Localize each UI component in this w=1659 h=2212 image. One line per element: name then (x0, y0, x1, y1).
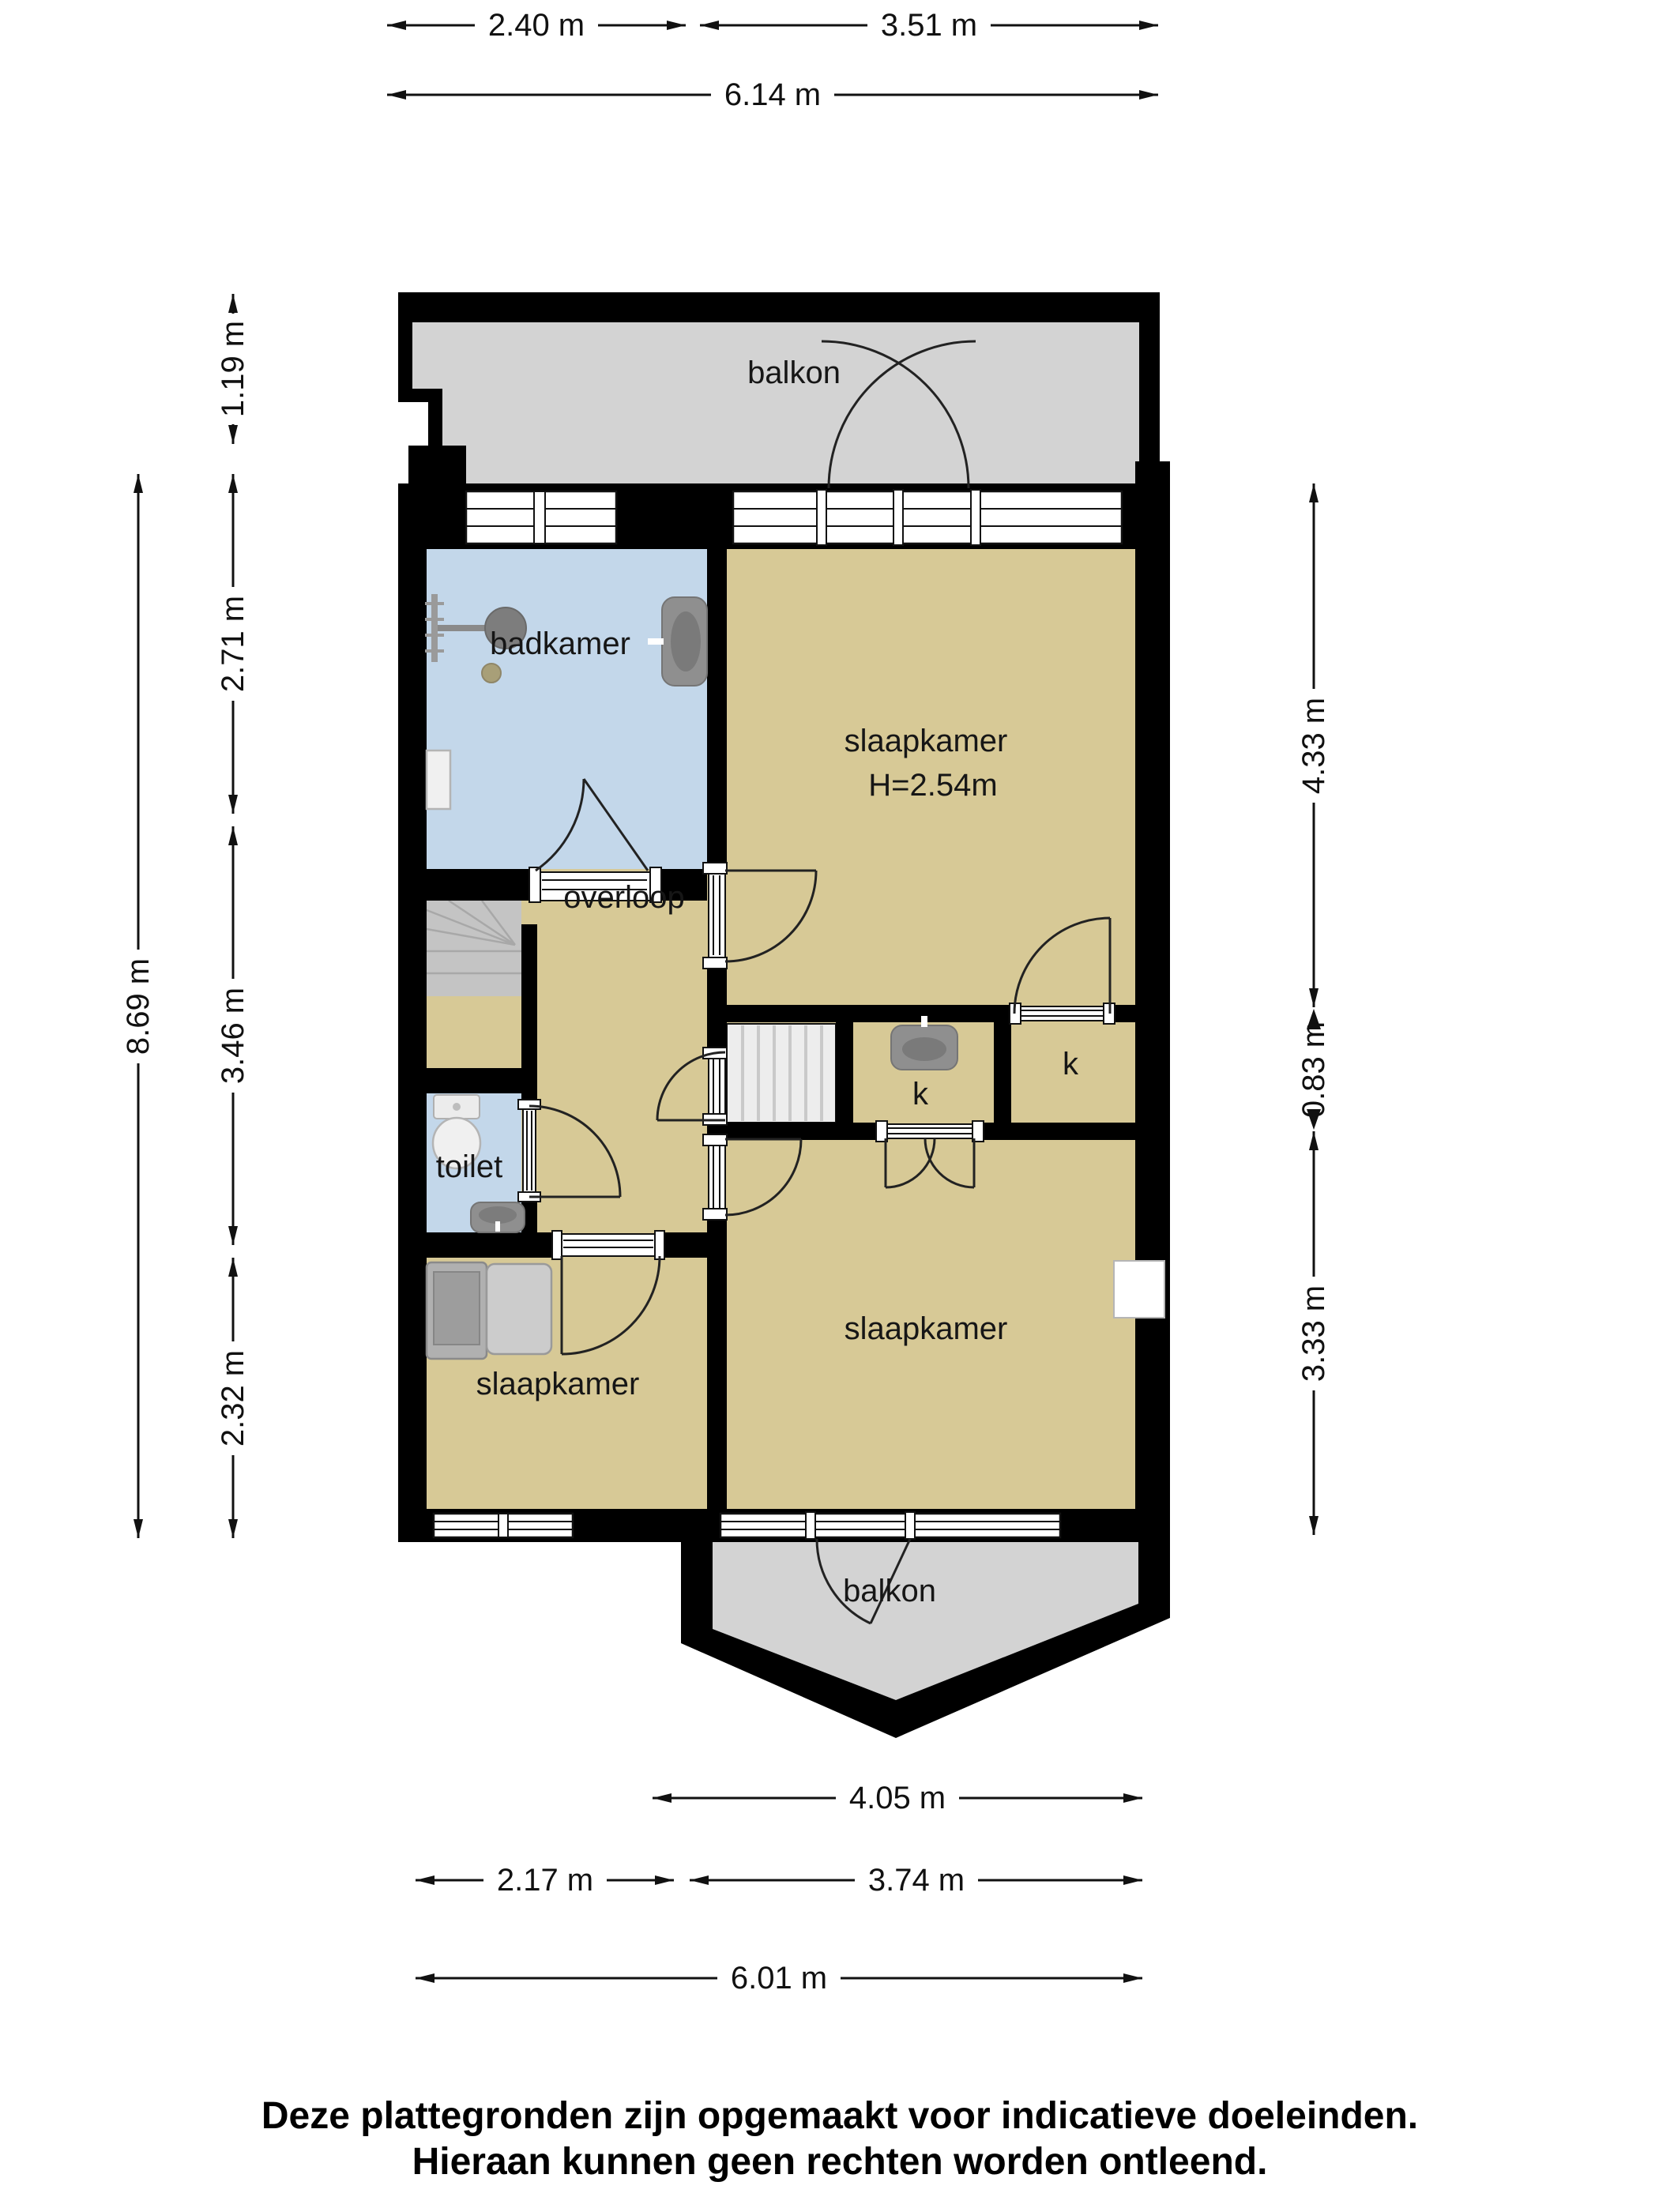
room-label-balkon-bottom: balkon (843, 1574, 936, 1608)
dim-bottom-room: 4.05 m (849, 1781, 946, 1815)
window-slaapkamer-bl-mullion (498, 1514, 508, 1537)
dim-top-left: 2.40 m (488, 8, 585, 43)
wall-above-toilet (427, 1068, 537, 1093)
dim-bottom-right: 3.74 m (868, 1863, 965, 1898)
door-threshold-stairs (709, 1054, 725, 1119)
sink-basin (479, 1206, 517, 1224)
room-label-overloop: overloop (563, 880, 684, 915)
sink-tap (495, 1221, 500, 1232)
dryer-icon (487, 1264, 551, 1354)
room-badkamer-floor (427, 549, 707, 869)
balcony-door-jamb-center (893, 490, 903, 545)
window-slaapkamer-top-left (733, 491, 822, 544)
dim-right-lower: 3.33 m (1296, 1285, 1331, 1382)
door-jamb (703, 957, 727, 969)
windows-bottom (434, 1512, 1060, 1539)
door-jamb (703, 1209, 727, 1220)
dim-top-right: 3.51 m (881, 8, 977, 43)
shower-arm (438, 625, 487, 631)
wall-badkamer-bottom-left (427, 869, 536, 901)
dim-top-total: 6.14 m (724, 77, 821, 112)
disclaimer-line1: Deze plattegronden zijn opgemaakt voor i… (261, 2095, 1418, 2137)
radiator-icon (427, 750, 450, 809)
balcony-door-jamb-left (817, 490, 826, 545)
door-threshold-closet-left (882, 1124, 977, 1138)
door-jamb (703, 1134, 727, 1145)
wall-corridor-end (660, 1232, 707, 1258)
room-label-closet-left: k (912, 1077, 929, 1112)
room-label-slaapkamer-br: slaapkamer (845, 1311, 1008, 1346)
dimensions-bottom: 4.05 m 2.17 m 3.74 m 6.01 m (416, 1781, 1142, 1996)
sink-toilet-icon (471, 1202, 525, 1232)
footer: Deze plattegronden zijn opgemaakt voor i… (261, 2095, 1418, 2183)
dim-left-middle: 3.46 m (216, 987, 250, 1084)
window-slaapkamer-br (720, 1514, 1060, 1537)
wall-below-toilet (427, 1232, 557, 1258)
room-label-balkon-top: balkon (747, 355, 841, 390)
washer-panel (434, 1272, 480, 1345)
dim-bottom-total: 6.01 m (731, 1961, 827, 1996)
wall-between-closets (994, 1022, 1011, 1123)
wall-closet-top-left (707, 1005, 1014, 1022)
door-jamb (552, 1231, 562, 1259)
wall-center-4 (707, 1215, 727, 1509)
dim-left-total: 8.69 m (121, 958, 156, 1055)
dim-bottom-left: 2.17 m (497, 1863, 593, 1898)
shower-drain (482, 664, 501, 683)
balcony-bottom (681, 1542, 1170, 1738)
wall-closet-bottom-left (707, 1123, 881, 1140)
door-jamb (703, 863, 727, 874)
room-label-toilet: toilet (436, 1149, 503, 1184)
washing-machine-icon (427, 1262, 487, 1359)
dim-left-lower: 2.32 m (216, 1350, 250, 1446)
right-wall (1135, 461, 1170, 1542)
door-threshold-toilet (523, 1106, 536, 1195)
balcony-step-wall-a (412, 389, 442, 403)
sink-tap (921, 1016, 927, 1027)
room-label-badkamer: badkamer (490, 626, 630, 661)
door-threshold-slaapkamer-top (709, 871, 725, 960)
balcony-door-jamb-right (971, 490, 980, 545)
dim-right-middle: 0.83 m (1296, 1021, 1331, 1118)
dim-left-upper: 2.71 m (216, 596, 250, 692)
room-label-closet-right: k (1063, 1047, 1079, 1082)
sink-basin (902, 1037, 946, 1061)
window-badkamer-mullion (534, 491, 545, 544)
floorplan-page: balkon badkamer slaapkamer H=2.54m overl… (0, 0, 1659, 2212)
room-label-slaapkamer-height: H=2.54m (868, 768, 997, 803)
floorplan-drawing: balkon badkamer slaapkamer H=2.54m overl… (0, 0, 1659, 2212)
door-threshold-slaapkamer-bl (559, 1234, 658, 1256)
room-label-slaapkamer-top: slaapkamer (845, 724, 1008, 758)
room-label-slaapkamer-bl: slaapkamer (476, 1367, 640, 1401)
wall-niche (1114, 1261, 1164, 1318)
disclaimer-line2: Hieraan kunnen geen rechten worden ontle… (412, 2141, 1268, 2183)
sink-tap (648, 638, 664, 645)
door-jamb (518, 1100, 540, 1109)
door-jamb (655, 1231, 664, 1259)
door-jamb (529, 867, 540, 902)
wall-center-1 (707, 549, 727, 869)
windows-front (466, 490, 1122, 545)
left-wall (398, 483, 427, 1542)
toilet-button (453, 1103, 461, 1111)
wall-stairs-right (521, 924, 537, 1068)
balcony-door-bottom-jamb-right (905, 1512, 915, 1539)
window-slaapkamer-top-right (976, 491, 1122, 544)
balcony-door-bottom-jamb-left (806, 1512, 815, 1539)
sink-basin (671, 611, 701, 671)
stairs-winder (427, 901, 521, 996)
dimensions-right: 4.33 m 0.83 m 3.33 m (1296, 483, 1331, 1535)
door-threshold-closet-right (1016, 1006, 1108, 1021)
door-threshold-slaapkamer-br (709, 1141, 725, 1213)
dimensions-left: 1.19 m 2.71 m 3.46 m 2.32 m 8.69 m (121, 294, 250, 1538)
dim-right-upper: 4.33 m (1296, 698, 1331, 794)
balcony-top (398, 292, 1160, 491)
wall-closet-bottom-right (979, 1123, 1135, 1140)
dimensions-top: 2.40 m 3.51 m 6.14 m (387, 8, 1158, 112)
wall-stairs-closet (836, 1022, 853, 1123)
balcony-top-floor (412, 322, 1139, 491)
stairs-straight (727, 1024, 836, 1123)
dim-left-balcony: 1.19 m (216, 321, 250, 417)
